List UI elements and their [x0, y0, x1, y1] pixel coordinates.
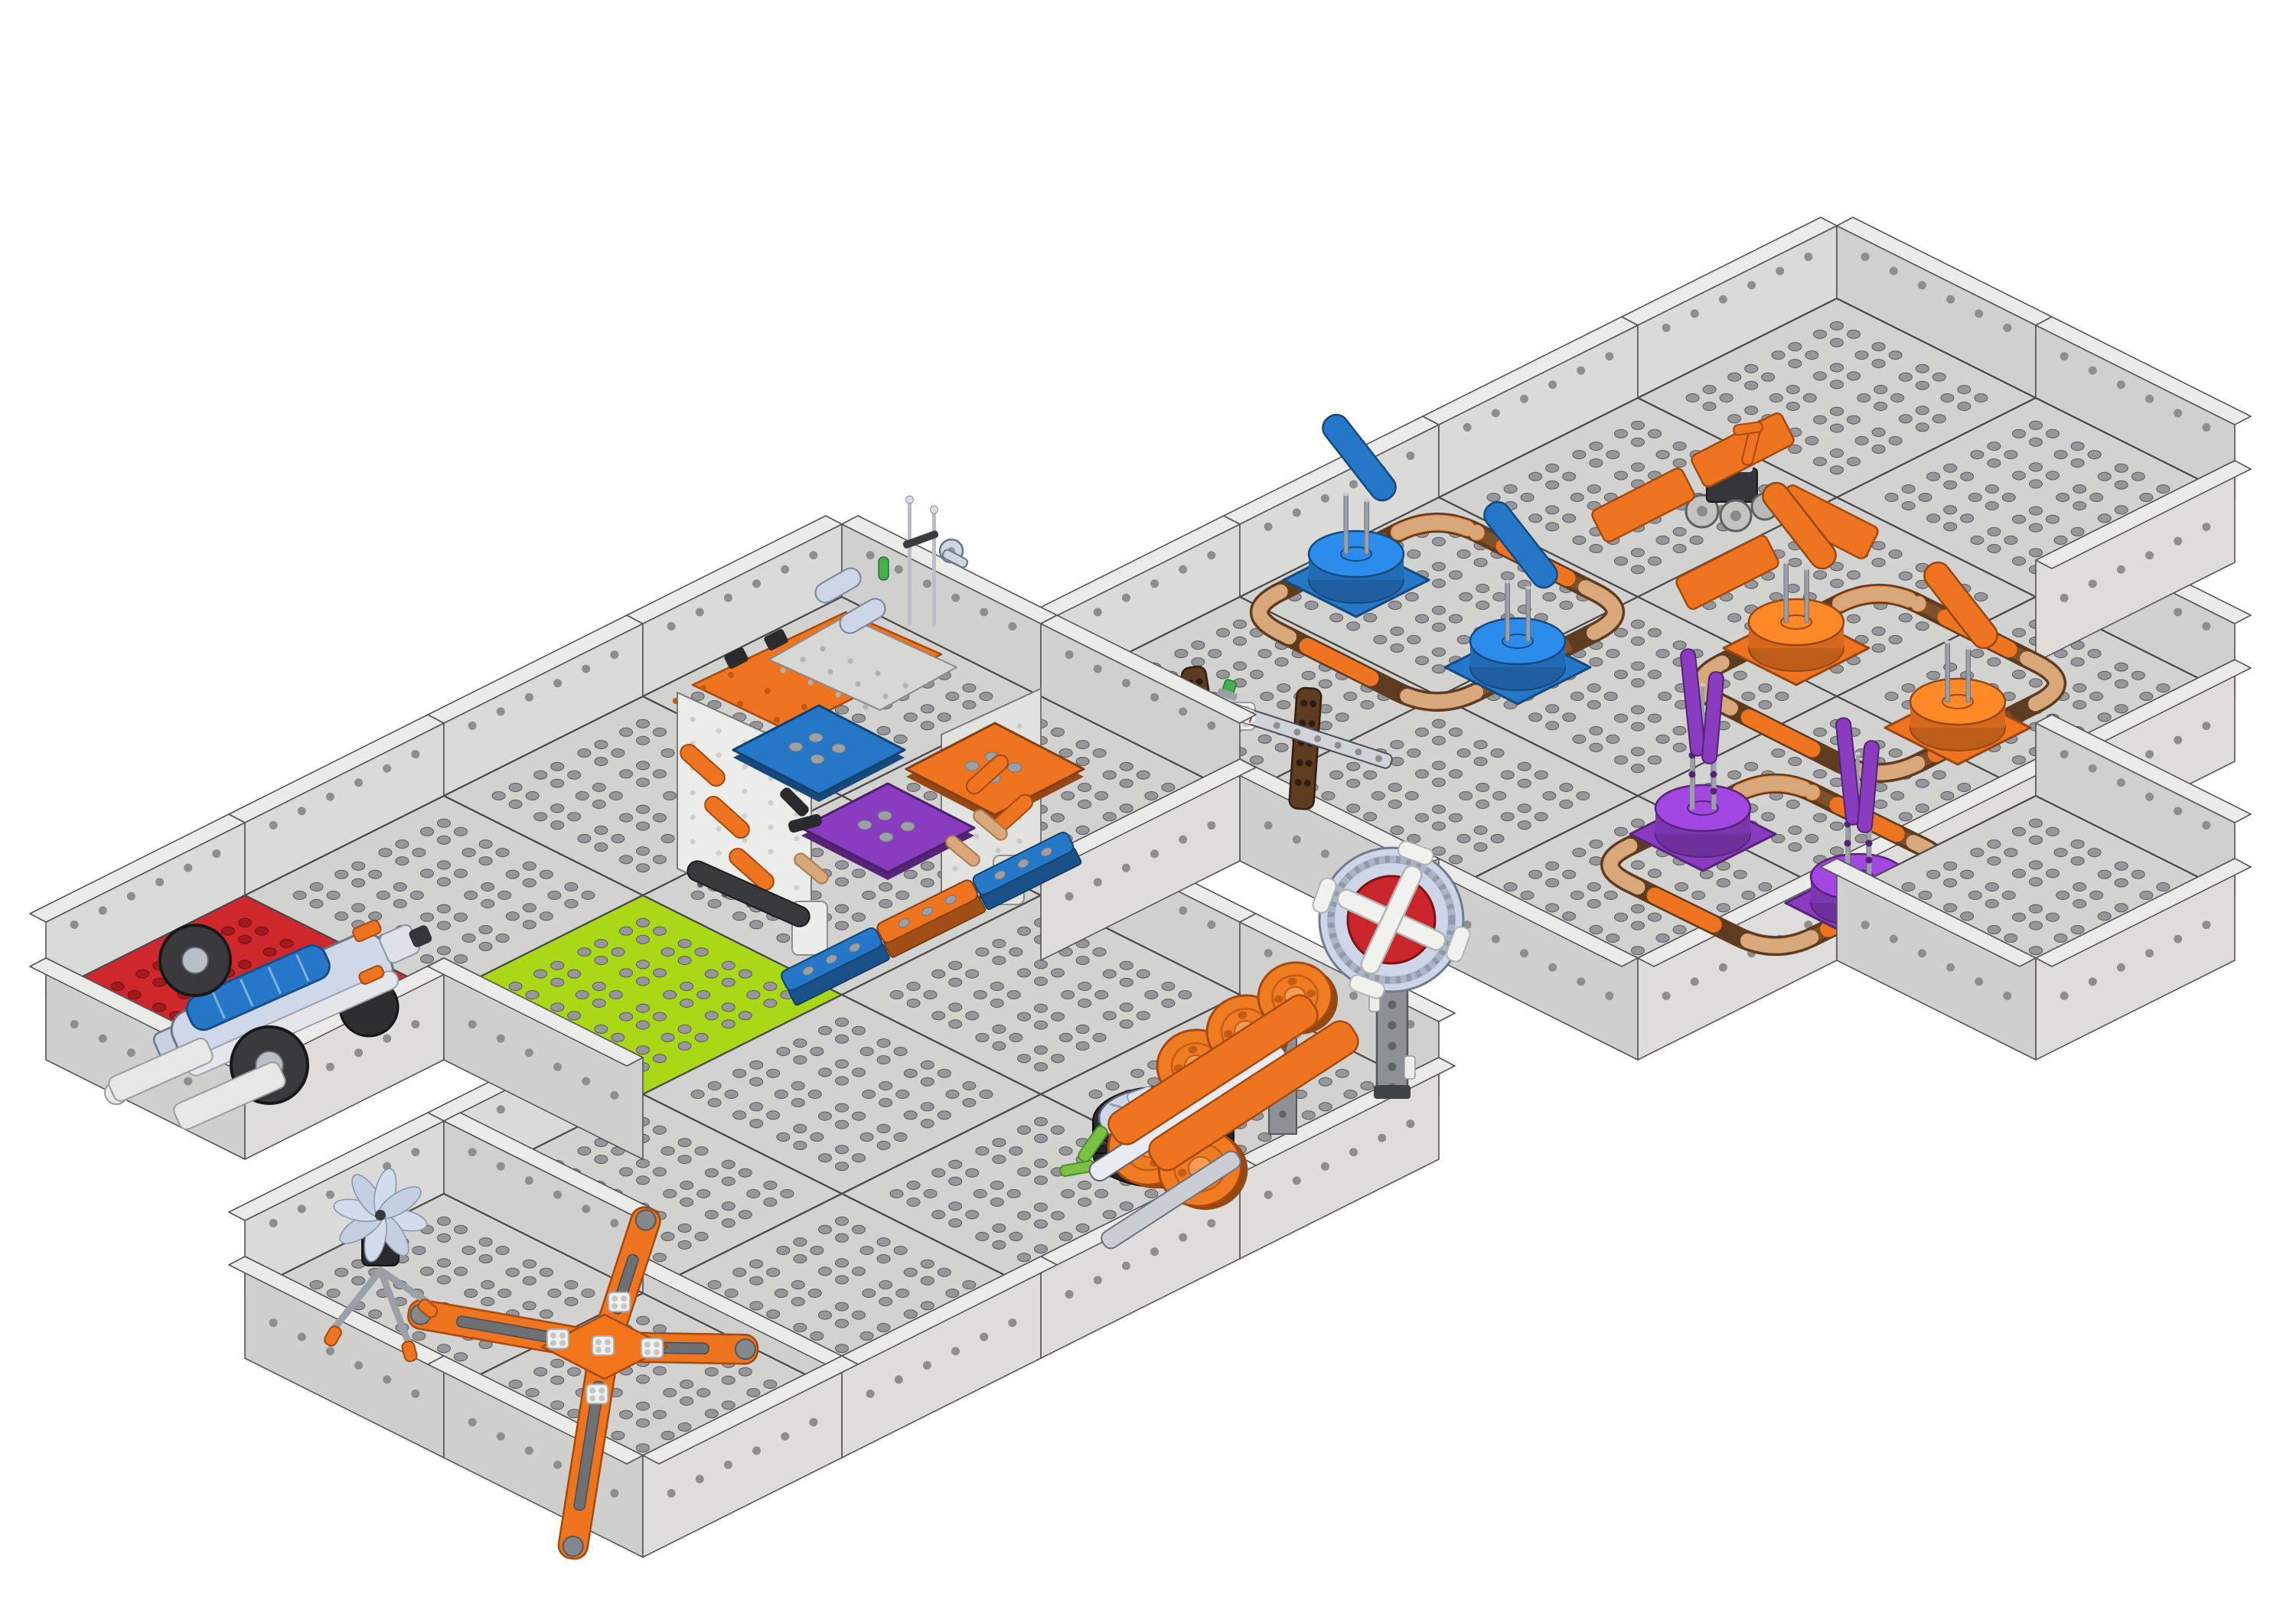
robotics-field [30, 217, 2251, 1561]
white-corner-block [592, 1336, 614, 1355]
white-corner-block [608, 1292, 630, 1312]
white-corner-block [547, 1329, 569, 1348]
white-corner-block [586, 1384, 608, 1403]
white-corner-block [641, 1338, 663, 1357]
scene-svg [0, 0, 2296, 1623]
field-render [0, 0, 2296, 1623]
